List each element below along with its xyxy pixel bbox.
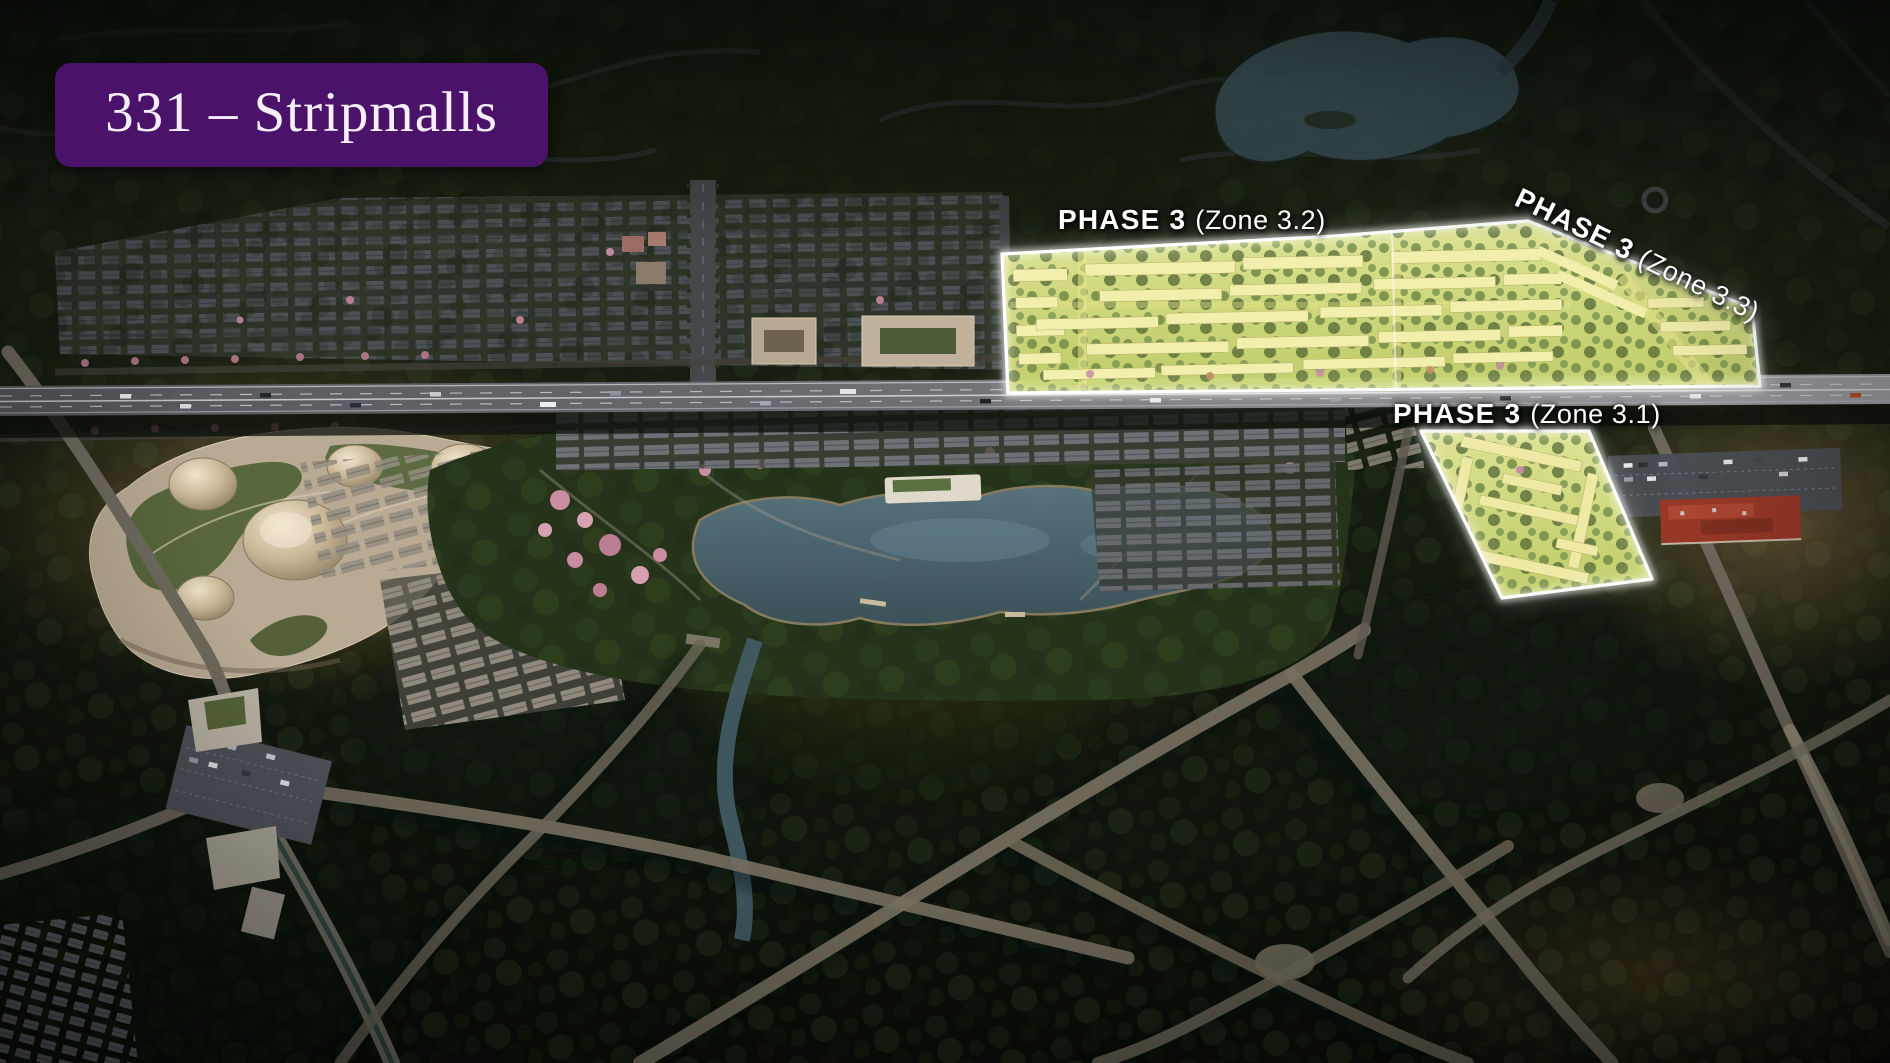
zone-3-2-label: PHASE 3(Zone 3.2) [1058, 204, 1326, 236]
title-badge-label: 331 – Stripmalls [105, 80, 498, 151]
zone-3-1-zone-text: (Zone 3.1) [1530, 399, 1661, 429]
title-badge: 331 – Stripmalls [55, 63, 548, 167]
masterplan-slide: 331 – Stripmalls PHASE 3(Zone 3.2) PHASE… [0, 0, 1890, 1063]
zone-3-1-label: PHASE 3(Zone 3.1) [1393, 398, 1661, 430]
zone-3-2-zone-text: (Zone 3.2) [1195, 205, 1326, 235]
zone-3-1-phase-text: PHASE 3 [1393, 398, 1521, 429]
zone-3-2-phase-text: PHASE 3 [1058, 204, 1186, 235]
